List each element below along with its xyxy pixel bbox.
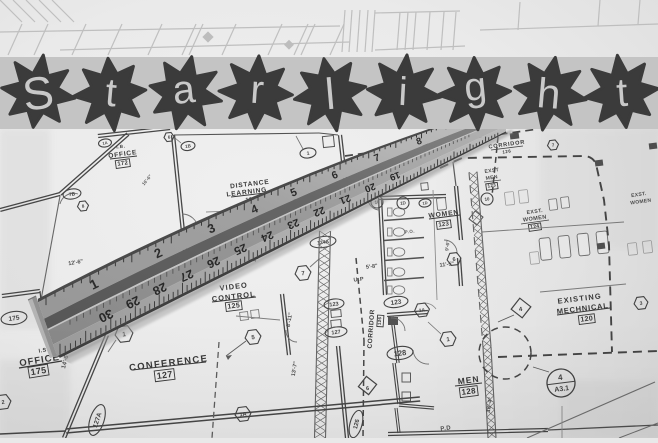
svg-text:g: g xyxy=(462,64,489,110)
svg-text:123: 123 xyxy=(329,301,339,308)
svg-text:1A: 1A xyxy=(102,140,108,146)
svg-text:h: h xyxy=(535,69,562,118)
